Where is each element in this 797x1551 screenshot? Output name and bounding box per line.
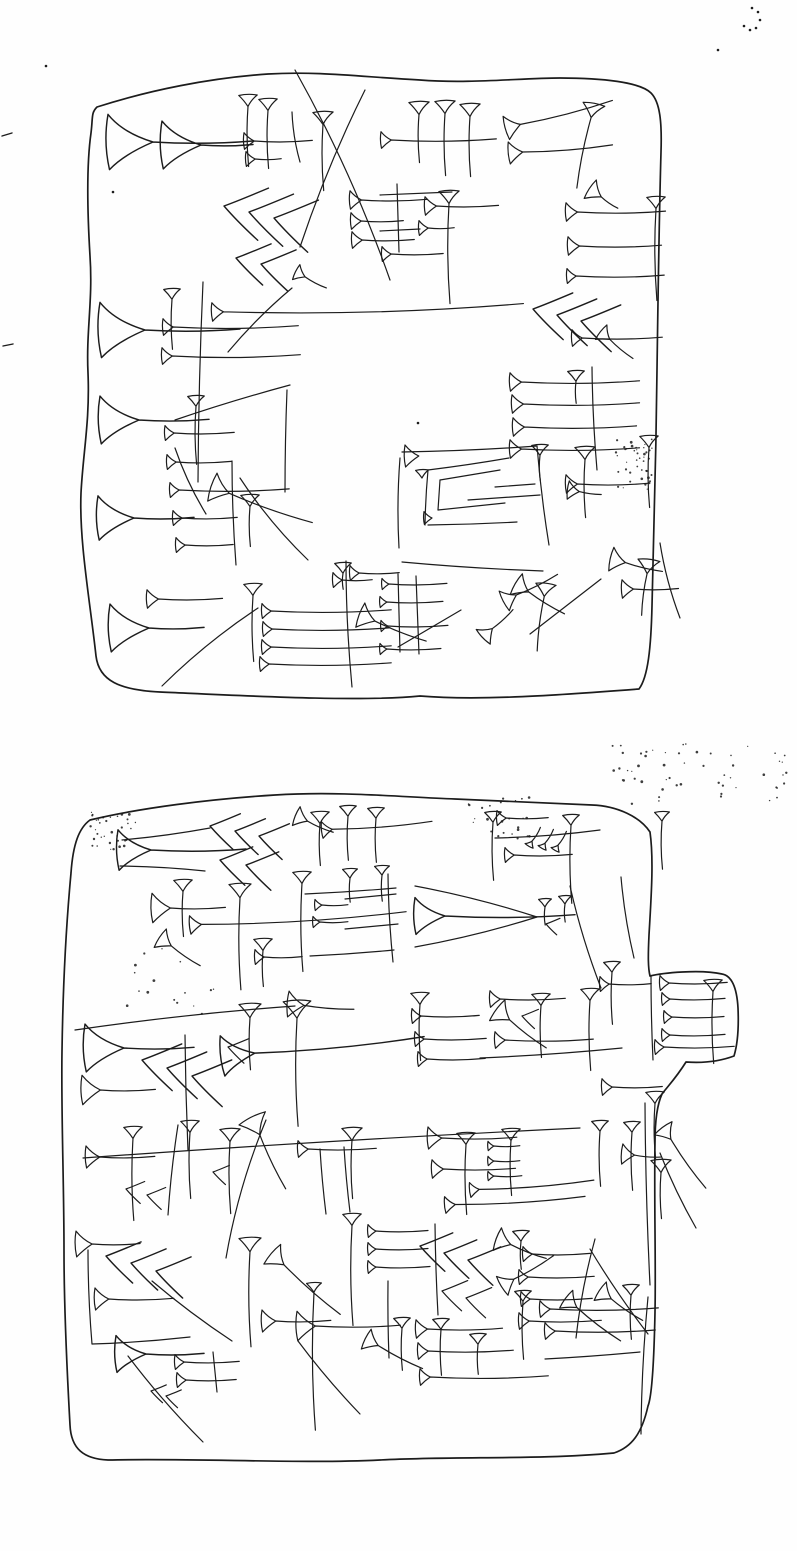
- vertical-wedge-stroke: [457, 1132, 475, 1214]
- horizontal-wedge-stroke: [431, 1160, 515, 1178]
- vertical-wedge-stroke: [539, 899, 552, 925]
- vertical-wedge-stroke: [568, 370, 585, 403]
- drawn-line-stroke: [416, 576, 419, 654]
- horizontal-wedge-stroke: [94, 1288, 174, 1310]
- horizontal-wedge-stroke: [382, 579, 447, 590]
- horizontal-wedge-stroke: [512, 418, 636, 436]
- horizontal-wedge-stroke: [296, 1311, 401, 1340]
- diagonal-wedge-stroke: [551, 829, 571, 853]
- diagonal-wedge-stroke: [496, 1247, 559, 1296]
- damage-stipple-patch: [615, 439, 653, 490]
- chevron-wedge-stroke: [462, 1282, 493, 1318]
- drawn-line-stroke: [435, 1224, 438, 1315]
- chevron-wedge-stroke: [438, 1275, 469, 1311]
- damage-stipple-patch: [126, 948, 214, 1015]
- upper-tablet-figure: [81, 70, 680, 699]
- drawn-line-stroke: [468, 495, 540, 500]
- horizontal-wedge-stroke: [254, 950, 302, 965]
- drawn-line-stroke: [300, 90, 365, 247]
- chevron-wedge-stroke: [206, 807, 242, 849]
- horizontal-wedge-stroke: [417, 1343, 513, 1360]
- drawn-line-stroke: [398, 458, 400, 548]
- horizontal-wedge-stroke: [415, 1320, 502, 1338]
- drawn-line-stroke: [621, 877, 634, 958]
- horizontal-wedge-stroke: [160, 121, 253, 169]
- speck-dot: [717, 49, 720, 52]
- vertical-wedge-stroke: [575, 446, 595, 517]
- damage-stipple-patch: [89, 812, 136, 851]
- scanned-page: [0, 0, 797, 1551]
- horizontal-wedge-stroke: [414, 1032, 486, 1047]
- drawn-line-stroke: [402, 562, 543, 571]
- horizontal-wedge-stroke: [108, 604, 204, 652]
- drawn-line-stroke: [295, 70, 390, 280]
- drawn-line-stroke: [298, 1341, 360, 1414]
- drawn-line-stroke: [128, 1356, 203, 1442]
- diagonal-wedge-stroke: [583, 180, 624, 218]
- horizontal-wedge-stroke: [106, 114, 253, 169]
- drawn-line-stroke: [344, 1147, 350, 1212]
- speck-dot: [755, 27, 758, 30]
- diagonal-wedge-stroke: [488, 999, 554, 1058]
- horizontal-wedge-stroke: [424, 197, 498, 215]
- horizontal-wedge-stroke: [176, 1373, 236, 1388]
- drawn-line-stroke: [440, 470, 500, 480]
- drawn-line-stroke: [175, 448, 206, 514]
- horizontal-wedge-stroke: [211, 297, 523, 321]
- horizontal-wedge-stroke: [381, 621, 448, 632]
- chevron-wedge-stroke: [123, 1178, 145, 1204]
- lower-tablet-figure: [62, 794, 738, 1462]
- drawn-line-stroke: [545, 1352, 640, 1359]
- vertical-wedge-stroke: [409, 101, 429, 162]
- diagonal-wedge-stroke: [502, 90, 615, 140]
- drawn-line-stroke: [660, 543, 680, 618]
- horizontal-wedge-stroke: [496, 811, 548, 826]
- diagonal-wedge-stroke: [476, 602, 520, 645]
- horizontal-wedge-stroke: [75, 1231, 140, 1257]
- drawn-line-stroke: [438, 503, 505, 510]
- diagonal-wedge-stroke: [153, 929, 206, 975]
- drawn-line-stroke: [292, 112, 300, 162]
- chevron-wedge-stroke: [164, 1387, 182, 1408]
- drawn-line-stroke: [592, 367, 597, 470]
- horizontal-wedge-stroke: [162, 319, 298, 336]
- horizontal-wedge-stroke: [349, 566, 399, 581]
- vertical-wedge-stroke: [565, 101, 605, 190]
- vertical-wedge-stroke: [340, 805, 357, 860]
- diagonal-wedge-stroke: [654, 1121, 715, 1195]
- chevron-wedge-stroke: [187, 1052, 234, 1107]
- drawn-line-stroke: [168, 1125, 178, 1215]
- lower-tablet-outline: [62, 794, 738, 1462]
- vertical-wedge-stroke: [704, 979, 722, 1063]
- horizontal-wedge-stroke: [351, 232, 414, 249]
- vertical-wedge-stroke: [515, 1290, 532, 1359]
- vertical-wedge-stroke: [411, 992, 429, 1060]
- diagonal-wedge-stroke: [238, 1111, 298, 1196]
- vertical-wedge-stroke: [259, 98, 277, 168]
- vertical-wedge-stroke: [244, 583, 262, 661]
- horizontal-wedge-stroke: [539, 1301, 658, 1318]
- horizontal-wedge-stroke: [261, 640, 391, 655]
- horizontal-wedge-stroke: [411, 1009, 479, 1024]
- drawn-line-stroke: [120, 866, 205, 871]
- vertical-wedge-stroke: [604, 961, 621, 1024]
- chevron-wedge-stroke: [268, 191, 321, 253]
- drawn-line-stroke: [198, 282, 203, 482]
- horizontal-wedge-stroke: [98, 396, 209, 444]
- drawn-line-stroke: [175, 385, 290, 420]
- horizontal-wedge-stroke: [504, 848, 572, 863]
- horizontal-wedge-stroke: [161, 348, 300, 365]
- vertical-wedge-stroke: [368, 807, 385, 862]
- diagonal-wedge-stroke: [509, 573, 571, 624]
- speck-dot: [417, 422, 420, 425]
- horizontal-wedge-stroke: [488, 1156, 520, 1165]
- vertical-wedge-stroke: [559, 896, 572, 922]
- speck-dot: [759, 19, 762, 22]
- margin-tick: [3, 344, 13, 346]
- margin-tick: [2, 133, 12, 136]
- drawn-line-stroke: [660, 1153, 696, 1228]
- chevron-wedge-stroke: [211, 1162, 230, 1185]
- drawn-line-stroke: [320, 1149, 326, 1214]
- drawn-line-stroke: [75, 1006, 295, 1030]
- horizontal-wedge-stroke: [659, 976, 727, 991]
- drawn-line-stroke: [162, 608, 258, 686]
- drawn-line-stroke: [402, 446, 537, 452]
- diagonal-wedge-stroke: [593, 1282, 649, 1330]
- chevron-wedge-stroke: [520, 1006, 539, 1029]
- horizontal-wedge-stroke: [518, 1270, 594, 1285]
- drawn-line-stroke: [415, 886, 537, 917]
- speck-dot: [45, 65, 48, 68]
- drawn-line-stroke: [152, 1281, 232, 1341]
- chevron-wedge-stroke: [231, 236, 273, 285]
- horizontal-wedge-stroke: [664, 1011, 724, 1024]
- chevron-wedge-stroke: [151, 1249, 193, 1298]
- speck-dot: [751, 7, 754, 10]
- diagonal-wedge-stroke: [263, 1244, 349, 1325]
- drawn-line-stroke: [310, 950, 394, 956]
- vertical-wedge-stroke: [433, 1318, 450, 1375]
- horizontal-wedge-stroke: [599, 977, 651, 992]
- diagonal-wedge-stroke: [559, 1290, 627, 1350]
- horizontal-wedge-stroke: [522, 1247, 590, 1262]
- horizontal-wedge-stroke: [566, 269, 664, 284]
- vertical-wedge-stroke: [532, 993, 550, 1057]
- drawn-line-stroke: [380, 229, 420, 231]
- chevron-wedge-stroke: [144, 1184, 166, 1210]
- horizontal-wedge-stroke: [262, 622, 390, 637]
- vertical-wedge-stroke: [164, 288, 181, 349]
- drawn-line-stroke: [122, 828, 210, 840]
- horizontal-wedge-stroke: [243, 133, 312, 150]
- horizontal-wedge-stroke: [654, 1040, 734, 1055]
- horizontal-wedge-stroke: [368, 1225, 428, 1238]
- damage-stipple-patch: [612, 743, 788, 805]
- vertical-wedge-stroke: [655, 811, 670, 869]
- horizontal-wedge-stroke: [544, 1323, 655, 1340]
- horizontal-wedge-stroke: [146, 590, 222, 608]
- chevron-wedge-stroke: [101, 1234, 143, 1283]
- horizontal-wedge-stroke: [662, 1029, 725, 1042]
- horizontal-wedge-stroke: [380, 644, 441, 655]
- chevron-wedge-stroke: [528, 285, 575, 340]
- diagonal-wedge-stroke: [595, 325, 639, 366]
- horizontal-wedge-stroke: [350, 213, 403, 230]
- drawn-line-stroke: [305, 888, 396, 894]
- drawn-line-stroke: [388, 1281, 389, 1358]
- speck-dot: [749, 29, 752, 32]
- vertical-wedge-stroke: [343, 1213, 361, 1325]
- drawn-line-stroke: [428, 522, 517, 525]
- horizontal-wedge-stroke: [175, 538, 233, 553]
- drawn-line-stroke: [438, 480, 440, 510]
- horizontal-wedge-stroke: [488, 1171, 522, 1180]
- vertical-wedge-stroke: [124, 1126, 142, 1220]
- horizontal-wedge-stroke: [509, 373, 639, 391]
- chevron-wedge-stroke: [544, 915, 561, 934]
- drawn-line-stroke: [570, 886, 601, 988]
- drawn-line-stroke: [480, 1048, 622, 1058]
- horizontal-wedge-stroke: [96, 496, 194, 540]
- vertical-wedge-stroke: [220, 1128, 240, 1213]
- horizontal-wedge-stroke: [419, 1369, 548, 1386]
- vertical-wedge-stroke: [581, 988, 599, 1070]
- horizontal-wedge-stroke: [169, 483, 289, 498]
- speck-dot: [743, 25, 746, 28]
- horizontal-wedge-stroke: [368, 1243, 428, 1256]
- vertical-wedge-stroke: [239, 1237, 261, 1347]
- horizontal-wedge-stroke: [662, 993, 725, 1006]
- tablet-drawing-canvas: [0, 0, 797, 1551]
- speck-dot: [112, 191, 115, 194]
- vertical-wedge-stroke: [307, 1282, 322, 1430]
- horizontal-wedge-stroke: [380, 597, 443, 608]
- diagonal-wedge-stroke: [206, 473, 317, 537]
- vertical-wedge-stroke: [470, 1333, 487, 1374]
- drawn-line-stroke: [530, 579, 601, 634]
- upper-tablet-outline: [81, 73, 661, 698]
- drawn-line-stroke: [645, 1103, 650, 1285]
- chevron-wedge-stroke: [218, 179, 271, 241]
- drawn-line-stroke: [232, 461, 236, 565]
- chevron-wedge-stroke: [243, 185, 296, 247]
- chevron-wedge-stroke: [256, 242, 298, 291]
- vertical-wedge-stroke: [181, 1120, 199, 1198]
- diagonal-wedge-stroke: [607, 547, 665, 583]
- chevron-wedge-stroke: [216, 840, 255, 885]
- horizontal-wedge-stroke: [164, 426, 234, 441]
- horizontal-wedge-stroke: [565, 203, 665, 221]
- drawn-line-stroke: [428, 458, 509, 470]
- vertical-wedge-stroke: [435, 100, 455, 175]
- drawn-line-stroke: [285, 390, 287, 492]
- drawn-line-stroke: [185, 1035, 188, 1150]
- vertical-wedge-stroke: [311, 811, 329, 865]
- horizontal-wedge-stroke: [315, 900, 348, 911]
- horizontal-wedge-stroke: [418, 221, 454, 236]
- chevron-wedge-stroke: [137, 1036, 184, 1091]
- horizontal-wedge-stroke: [174, 1355, 239, 1370]
- drawn-line-stroke: [425, 470, 428, 525]
- horizontal-wedge-stroke: [151, 893, 226, 922]
- speck-dot: [757, 11, 760, 14]
- horizontal-wedge-stroke: [380, 132, 496, 149]
- horizontal-wedge-stroke: [189, 904, 407, 934]
- drawn-line-stroke: [398, 610, 461, 647]
- drawn-line-stroke: [398, 574, 400, 652]
- vertical-wedge-stroke: [485, 811, 502, 880]
- horizontal-wedge-stroke: [332, 573, 372, 588]
- horizontal-wedge-stroke: [259, 657, 391, 672]
- horizontal-wedge-stroke: [116, 830, 246, 870]
- horizontal-wedge-stroke: [404, 445, 419, 467]
- drawn-line-stroke: [388, 874, 393, 962]
- chevron-wedge-stroke: [255, 817, 291, 859]
- horizontal-wedge-stroke: [245, 152, 281, 167]
- vertical-wedge-stroke: [229, 883, 251, 990]
- horizontal-wedge-stroke: [381, 247, 443, 262]
- horizontal-wedge-stroke: [417, 1052, 485, 1067]
- horizontal-wedge-stroke: [488, 1141, 520, 1150]
- horizontal-wedge-stroke: [368, 1261, 430, 1274]
- vertical-wedge-stroke: [283, 1000, 311, 1126]
- vertical-wedge-stroke: [239, 94, 257, 166]
- vertical-wedge-stroke: [343, 868, 358, 902]
- drawn-line-stroke: [92, 1337, 190, 1344]
- drawn-line-stroke: [88, 1250, 92, 1344]
- drawn-line-stroke: [495, 830, 600, 838]
- vertical-wedge-stroke: [416, 470, 429, 478]
- horizontal-wedge-stroke: [166, 455, 231, 470]
- horizontal-wedge-stroke: [81, 1075, 156, 1104]
- vertical-wedge-stroke: [592, 1120, 609, 1186]
- diagonal-wedge-stroke: [292, 264, 331, 295]
- drawn-line-stroke: [213, 1352, 217, 1392]
- horizontal-wedge-stroke: [509, 440, 639, 458]
- drawn-line-stroke: [228, 288, 292, 352]
- drawn-line-stroke: [651, 976, 653, 1060]
- vertical-wedge-stroke: [188, 395, 205, 464]
- vertical-wedge-stroke: [630, 558, 660, 617]
- horizontal-wedge-stroke: [567, 237, 661, 255]
- horizontal-wedge-stroke: [115, 1336, 204, 1373]
- horizontal-wedge-stroke: [601, 1079, 662, 1096]
- horizontal-wedge-stroke: [518, 1313, 601, 1330]
- diagonal-wedge-stroke: [507, 135, 613, 164]
- drawn-line-stroke: [495, 484, 535, 487]
- vertical-wedge-stroke: [335, 562, 352, 589]
